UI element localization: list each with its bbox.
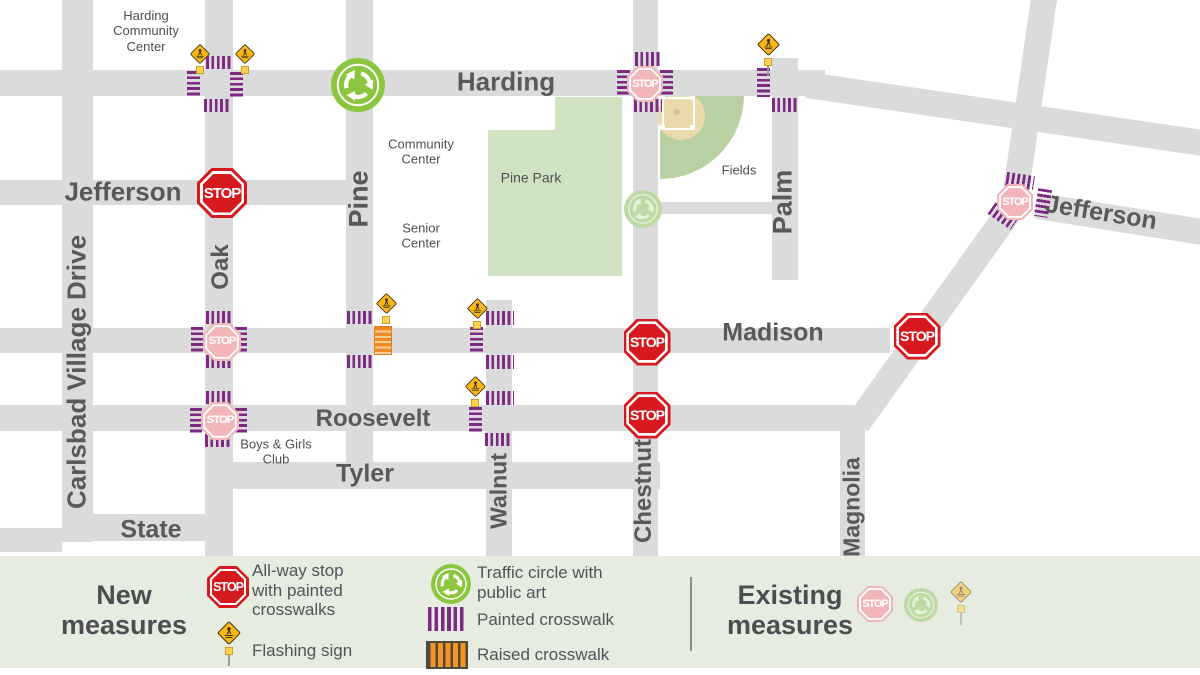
traffic-measures-map: New measures STOP All-way stop with pain…: [0, 0, 1200, 675]
stop-sign-existing: STOP: [203, 323, 241, 361]
stop-text: STOP: [207, 415, 234, 426]
street-label-oak: Oak: [207, 244, 235, 289]
legend-flashing-label-text: Flashing sign: [252, 641, 352, 661]
street-label-pine: Pine: [344, 170, 375, 227]
painted-crosswalk: [486, 311, 514, 325]
legend-existing-stop-icon: STOP: [857, 586, 893, 622]
pedestrian-crossing-icon: [189, 43, 211, 65]
legend-divider: [690, 577, 692, 651]
stop-face: STOP: [203, 174, 242, 213]
road-harding-diagonal: [805, 72, 1200, 156]
road-jefferson-west: [0, 180, 373, 205]
stop-sign-existing: STOP: [201, 402, 239, 440]
stop-text: STOP: [632, 79, 657, 90]
street-label-harding: Harding: [457, 67, 555, 98]
legend-stop-label-line2: with painted: [252, 581, 344, 601]
street-label-roosevelt: Roosevelt: [316, 405, 431, 433]
sign-beacon: [764, 58, 772, 66]
pine-park-area-upper: [555, 97, 622, 134]
street-label-walnut: Walnut: [486, 453, 513, 529]
flashing-sign: [464, 375, 487, 407]
flashing-sign: [189, 43, 211, 74]
stop-text: STOP: [630, 408, 664, 422]
painted-crosswalk: [347, 355, 374, 368]
sign-beacon: [196, 66, 204, 74]
legend-stop-label-line1: All-way stop: [252, 561, 344, 581]
pedestrian-crossing-icon: [234, 43, 256, 65]
legend-raised-label-text: Raised crosswalk: [477, 645, 609, 665]
legend-stop-sign-icon: STOP: [207, 566, 249, 608]
painted-crosswalk: [347, 311, 374, 324]
stop-text: STOP: [1002, 197, 1027, 208]
painted-crosswalk: [191, 327, 203, 354]
sign-pole: [228, 655, 230, 666]
sign-beacon: [225, 647, 233, 655]
stop-text: STOP: [630, 335, 664, 349]
painted-crosswalk: [635, 52, 662, 66]
stop-sign-new: STOP: [197, 168, 247, 218]
painted-crosswalk: [486, 391, 514, 405]
sign-beacon: [241, 66, 249, 74]
stop-text: STOP: [900, 329, 934, 343]
sign-beacon: [382, 316, 390, 324]
place-label-3: Pine Park: [501, 170, 562, 187]
stop-sign-new: STOP: [624, 319, 671, 366]
stop-text: STOP: [213, 581, 243, 594]
stop-sign-existing: STOP: [997, 184, 1033, 220]
place-label-2: Senior Center: [401, 221, 440, 252]
stop-sign-new: STOP: [624, 392, 671, 439]
legend-existing-title: Existing measures: [700, 580, 880, 640]
legend-existing-title-line1: Existing: [700, 580, 880, 610]
traffic-circle-existing: [624, 190, 662, 228]
traffic-circle-new: [331, 58, 385, 112]
stop-sign-new: STOP: [894, 313, 941, 360]
ballfield-base: [660, 125, 665, 130]
sign-beacon: [957, 605, 965, 613]
street-label-jefferson: Jefferson: [64, 177, 181, 208]
road-jefferson-connector: [655, 202, 780, 214]
stop-sign-existing: STOP: [627, 66, 663, 102]
legend-circle-label-line1: Traffic circle with: [477, 563, 603, 583]
legend-new-title-line1: New: [34, 580, 214, 610]
ballfield-mound: [674, 109, 680, 115]
painted-crosswalk: [187, 71, 200, 98]
street-label-tyler: Tyler: [336, 460, 394, 489]
ballfield-base: [690, 125, 695, 130]
street-label-madison: Madison: [722, 319, 823, 348]
legend-existing-circle-icon: [904, 588, 938, 622]
stop-face: STOP: [899, 318, 936, 355]
legend-new-title-line2: measures: [34, 610, 214, 640]
stop-text: STOP: [862, 599, 887, 610]
road-harding: [0, 70, 825, 96]
stop-face: STOP: [212, 571, 245, 604]
place-label-5: Boys & Girls Club: [240, 437, 312, 468]
sign-beacon: [471, 399, 479, 407]
pedestrian-crossing-icon: [756, 32, 781, 57]
legend-traffic-circle-icon: [431, 564, 471, 604]
pine-park-area: [488, 130, 622, 276]
stop-face: STOP: [861, 590, 889, 618]
painted-crosswalk: [772, 98, 799, 112]
legend-stop-label-line3: crosswalks: [252, 600, 344, 620]
legend-existing-title-line2: measures: [700, 610, 880, 640]
legend-circle-label-line2: public art: [477, 583, 603, 603]
stop-face: STOP: [629, 324, 666, 361]
street-label-state: State: [120, 516, 181, 545]
street-label-carlsbad-village-drive: Carlsbad Village Drive: [62, 235, 93, 509]
stop-face: STOP: [207, 327, 237, 357]
sign-pole: [960, 613, 962, 625]
stop-text: STOP: [204, 186, 241, 201]
sign-beacon: [473, 321, 481, 329]
raised-crosswalk: [374, 326, 392, 355]
stop-face: STOP: [205, 406, 235, 436]
flashing-sign: [756, 32, 781, 76]
painted-crosswalk: [469, 407, 482, 434]
painted-crosswalk: [486, 355, 514, 369]
pedestrian-crossing-icon: [466, 297, 489, 320]
place-label-0: Harding Community Center: [113, 8, 179, 54]
legend-painted-label-text: Painted crosswalk: [477, 610, 614, 630]
legend-circle-label: Traffic circle with public art: [477, 563, 603, 602]
painted-crosswalk: [485, 433, 511, 446]
painted-crosswalk: [230, 72, 243, 99]
street-label-chestnut: Chestnut: [630, 439, 658, 543]
legend-stop-label: All-way stop with painted crosswalks: [252, 561, 344, 620]
legend-painted-crosswalk-swatch: [428, 607, 464, 631]
sign-pole: [767, 66, 769, 76]
painted-crosswalk: [204, 99, 231, 112]
legend-raised-crosswalk-swatch: [426, 641, 468, 669]
place-label-1: Community Center: [388, 137, 454, 168]
street-label-palm: Palm: [768, 170, 799, 235]
legend-new-title: New measures: [34, 580, 214, 640]
legend-flashing-label: Flashing sign: [252, 641, 352, 661]
painted-crosswalk: [470, 327, 483, 354]
flashing-sign: [466, 297, 489, 329]
place-label-4: Fields: [722, 162, 757, 177]
stop-text: STOP: [209, 336, 236, 347]
pedestrian-crossing-icon: [375, 292, 398, 315]
legend-existing-flashing-icon: [949, 580, 973, 625]
pedestrian-crossing-icon: [216, 620, 242, 646]
flashing-sign: [234, 43, 256, 74]
stop-face: STOP: [1001, 188, 1029, 216]
legend-raised-label: Raised crosswalk: [477, 645, 609, 665]
road-state-stub: [0, 528, 62, 552]
legend-flashing-sign-icon: [216, 620, 242, 666]
street-label-magnolia: Magnolia: [839, 457, 866, 557]
flashing-sign: [375, 292, 398, 324]
stop-face: STOP: [629, 397, 666, 434]
legend-painted-label: Painted crosswalk: [477, 610, 614, 630]
pedestrian-crossing-icon: [464, 375, 487, 398]
stop-face: STOP: [631, 70, 659, 98]
pedestrian-crossing-icon: [949, 580, 973, 604]
